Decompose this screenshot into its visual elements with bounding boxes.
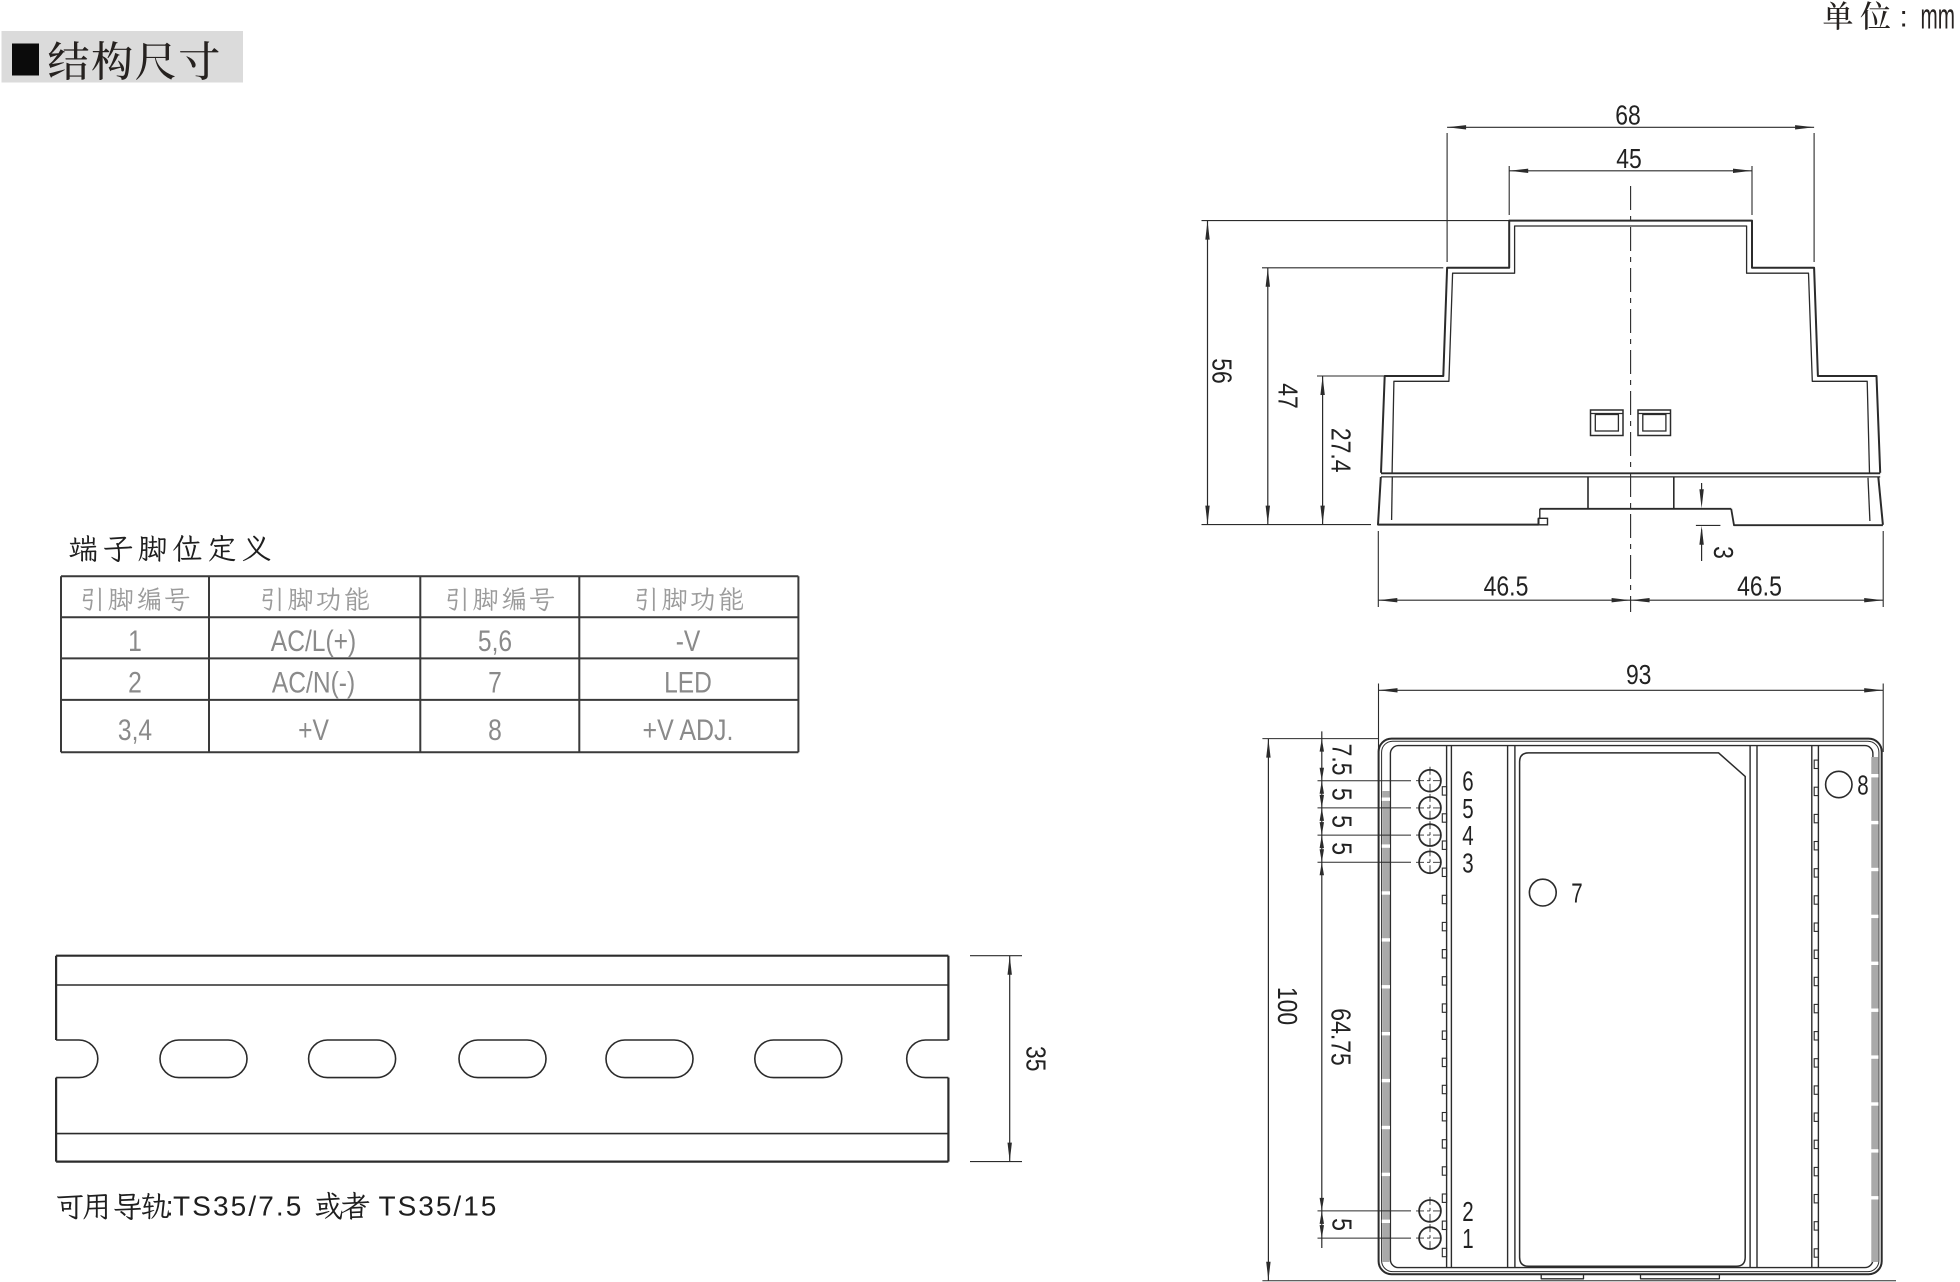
svg-text:5: 5 — [1327, 788, 1358, 801]
svg-text:+V ADJ.: +V ADJ. — [643, 714, 734, 747]
svg-text::: : — [1900, 1, 1908, 34]
svg-text:AC/N(-): AC/N(-) — [272, 666, 355, 699]
svg-text:64.75: 64.75 — [1326, 1008, 1357, 1065]
svg-text:5: 5 — [1327, 815, 1358, 828]
svg-text:5: 5 — [1327, 842, 1358, 855]
svg-text:mm: mm — [1921, 0, 1956, 37]
svg-text:100: 100 — [1272, 987, 1303, 1025]
svg-text:45: 45 — [1616, 143, 1642, 174]
svg-text:27.4: 27.4 — [1325, 428, 1356, 473]
svg-text:AC/L(+): AC/L(+) — [271, 625, 356, 658]
svg-text:1: 1 — [1462, 1223, 1473, 1254]
svg-text:8: 8 — [488, 714, 502, 747]
svg-text:68: 68 — [1615, 100, 1641, 131]
svg-text:93: 93 — [1626, 659, 1652, 690]
svg-text:5: 5 — [1327, 1218, 1358, 1231]
svg-text:TS35/15: TS35/15 — [379, 1191, 499, 1222]
svg-text:8: 8 — [1857, 770, 1868, 801]
svg-text:35: 35 — [1021, 1046, 1052, 1072]
svg-text:5,6: 5,6 — [478, 625, 512, 658]
svg-text:7.5: 7.5 — [1327, 744, 1358, 776]
svg-text:2: 2 — [128, 666, 142, 699]
svg-text:1: 1 — [128, 625, 142, 658]
svg-text:LED: LED — [664, 666, 712, 699]
svg-text:3: 3 — [1462, 847, 1473, 878]
svg-text:TS35/7.5: TS35/7.5 — [173, 1191, 303, 1222]
svg-text:-V: -V — [676, 625, 701, 658]
svg-text:7: 7 — [1571, 878, 1582, 909]
svg-text:7: 7 — [488, 666, 502, 699]
svg-text:3,4: 3,4 — [118, 714, 152, 747]
svg-text:46.5: 46.5 — [1484, 571, 1529, 602]
svg-text:3: 3 — [1708, 546, 1739, 559]
svg-text:47: 47 — [1273, 383, 1304, 409]
svg-text:+V: +V — [298, 714, 329, 747]
svg-text:46.5: 46.5 — [1737, 571, 1782, 602]
svg-text:56: 56 — [1207, 358, 1238, 384]
